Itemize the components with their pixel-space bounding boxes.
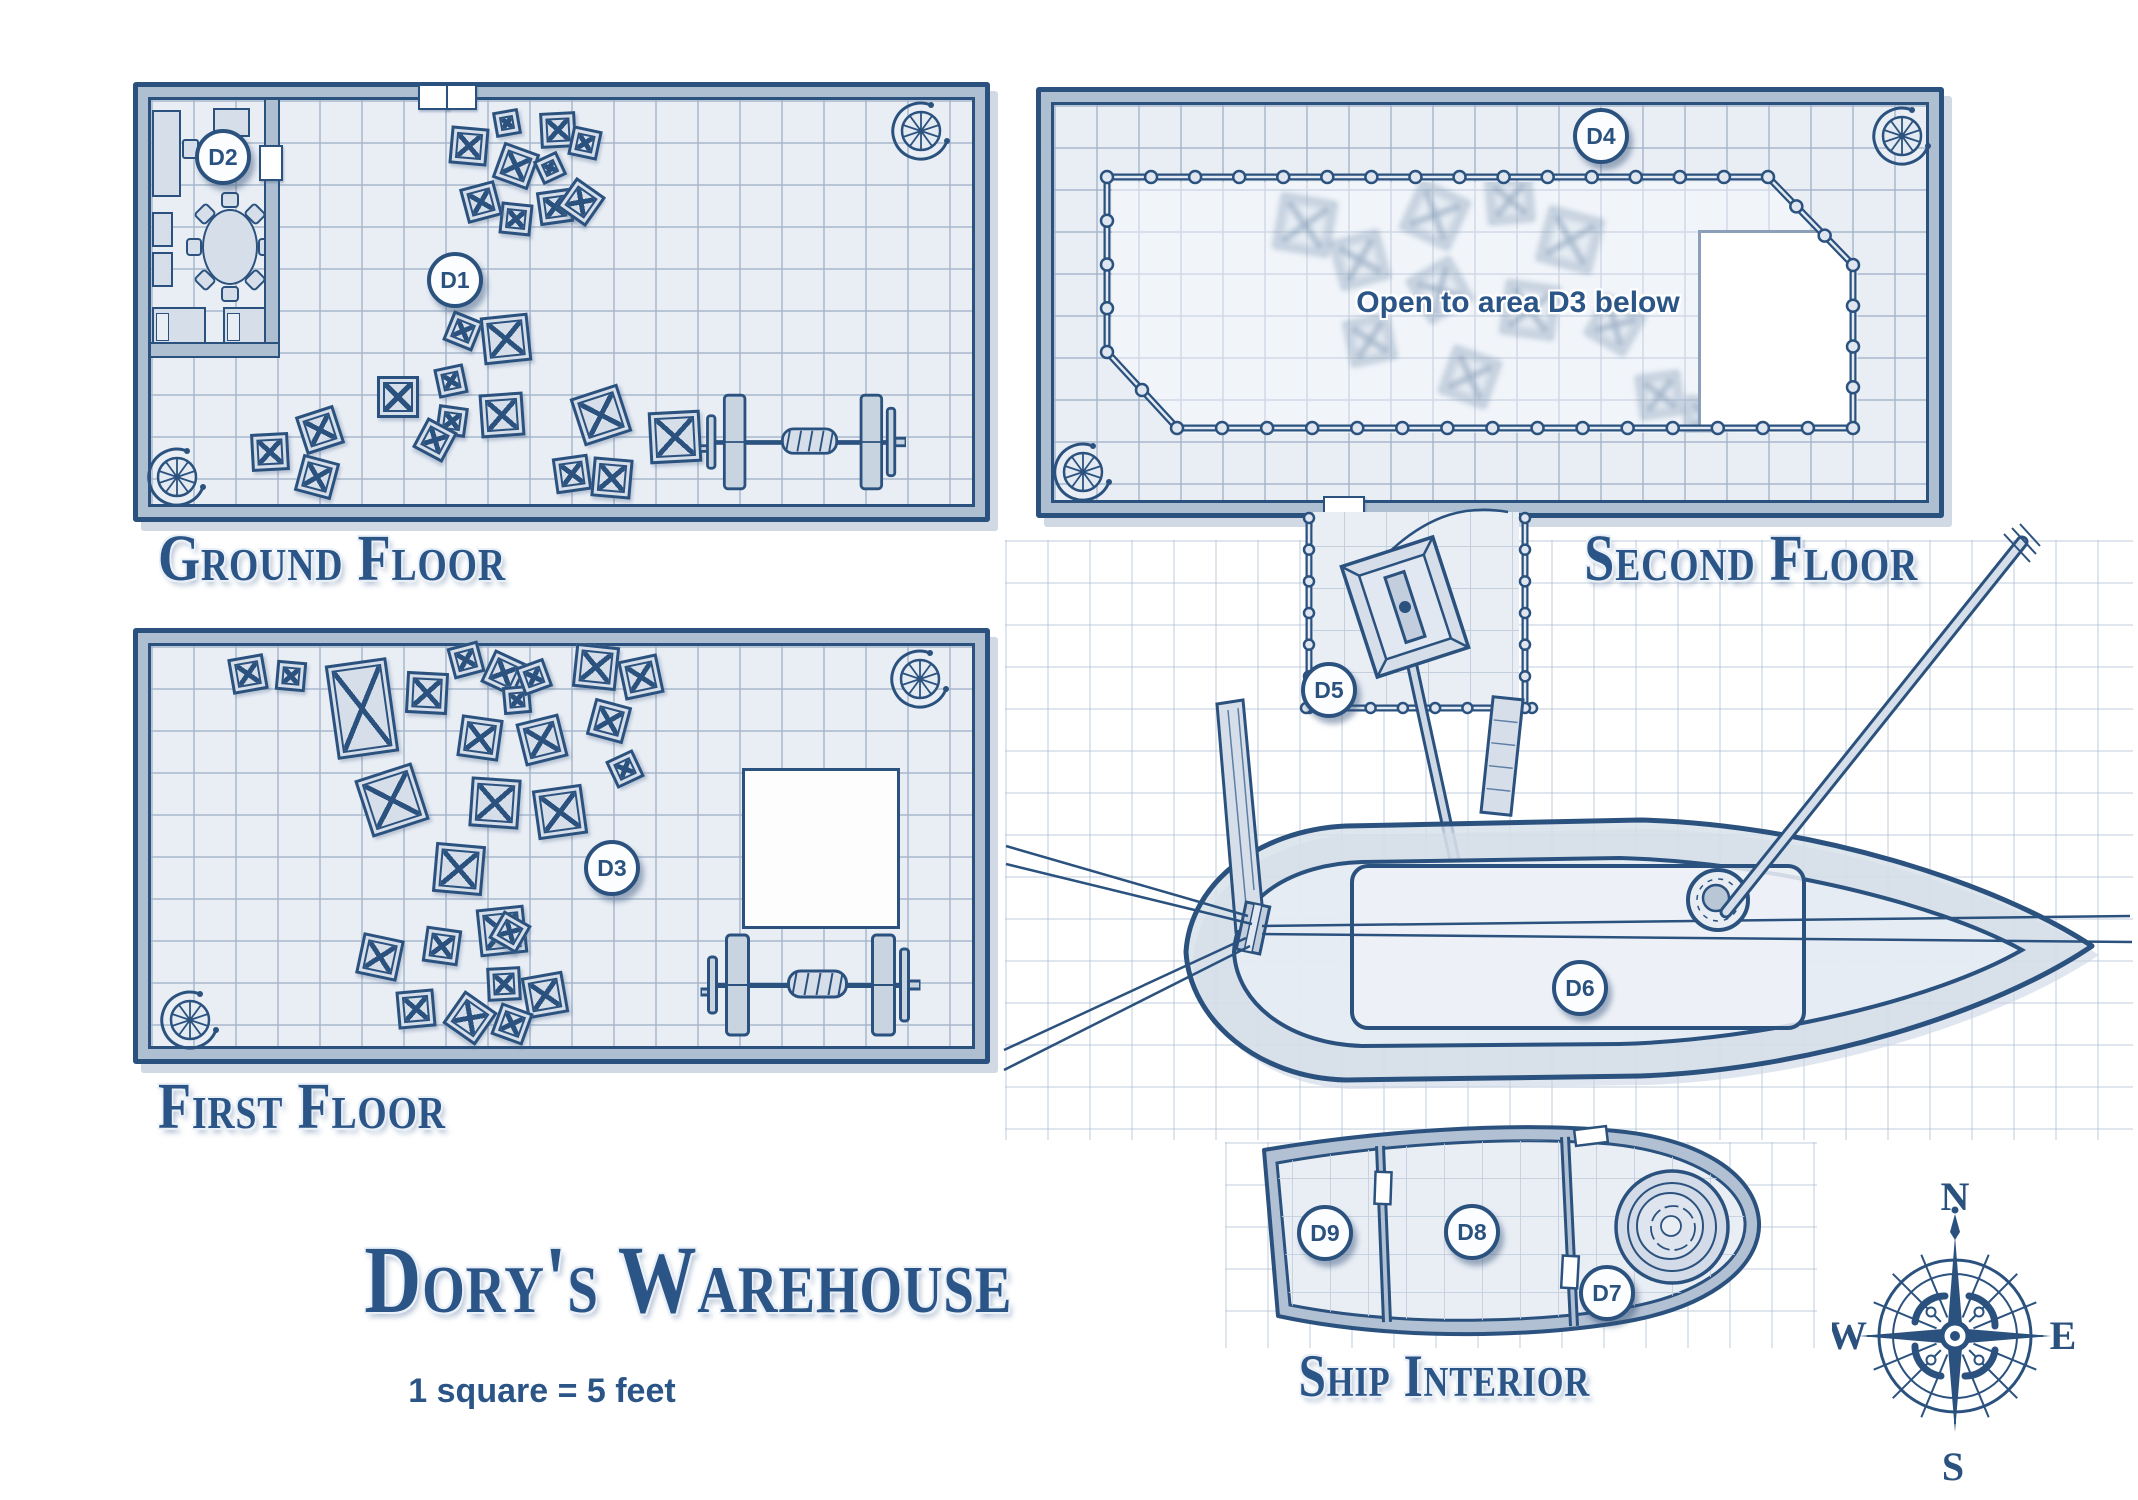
office-wall-vertical (264, 98, 280, 358)
ghost-hatch-square (1698, 230, 1854, 429)
second-floor-label: Second Floor (1584, 526, 1918, 592)
compass-spoke (1921, 1354, 1947, 1417)
compass-spoke (1874, 1302, 1937, 1328)
floor-opening-hatch (742, 768, 900, 929)
ghost-crate (1635, 370, 1685, 420)
shelf (152, 252, 173, 287)
compass-spoke (1963, 1255, 1989, 1318)
warehouse-entry-door-right (446, 84, 477, 110)
compass-spoke (1874, 1344, 1937, 1370)
area-marker-d3: D3 (584, 840, 640, 896)
first-floor-plan (133, 628, 990, 1064)
area-marker-d2: D2 (195, 129, 251, 185)
compass-spoke (1969, 1274, 2017, 1322)
ground-floor-label: Ground Floor (158, 526, 506, 592)
spiral-stairs-icon (889, 99, 953, 163)
spiral-stairs-icon (145, 445, 209, 509)
spiral-stairs-icon (888, 647, 952, 711)
spiral-stairs-icon (158, 988, 222, 1052)
compass-spoke (1893, 1350, 1941, 1398)
ghost-crate (1273, 193, 1338, 258)
loading-platform-door (1323, 496, 1365, 524)
office-wall-horizontal (149, 342, 280, 358)
table-chair (221, 286, 239, 302)
area-marker-d8: D8 (1444, 1204, 1500, 1260)
backdrop-grid (1005, 540, 2133, 1140)
area-marker-d1: D1 (427, 252, 483, 308)
ghost-crate (1343, 313, 1398, 368)
compass-spoke (1973, 1344, 2036, 1370)
first-floor-label: First Floor (158, 1074, 446, 1140)
spiral-stairs-icon (1051, 440, 1115, 504)
ship-interior-label: Ship Interior (1299, 1346, 1578, 1406)
warehouse-entry-door-left (418, 84, 449, 110)
compass-spoke (1893, 1274, 1941, 1322)
ghost-crate (1485, 175, 1535, 225)
ground-floor-plan (133, 82, 990, 522)
compass-south-label: S (1942, 1444, 1964, 1489)
area-marker-d5: D5 (1301, 662, 1357, 718)
compass-north-label: N (1941, 1174, 1970, 1219)
map-scale-note: 1 square = 5 feet (342, 1372, 742, 1411)
compass-spoke (1963, 1354, 1989, 1417)
table-chair (221, 192, 239, 208)
compass-spoke (1973, 1302, 2036, 1328)
office-door (259, 145, 283, 181)
table-chair (186, 238, 202, 256)
area-marker-d6: D6 (1552, 960, 1608, 1016)
open-to-below-note: Open to area D3 below (1328, 286, 1708, 320)
area-marker-d4: D4 (1573, 108, 1629, 164)
spiral-stairs-icon (1870, 104, 1934, 168)
compass-east-label: E (2050, 1313, 2077, 1358)
area-marker-d9: D9 (1297, 1205, 1353, 1261)
page-title: Dory's Warehouse (364, 1232, 905, 1328)
desk (152, 110, 181, 197)
compass-west-label: W (1832, 1313, 1867, 1358)
compass-rose: N E S W (1832, 1158, 2082, 1493)
warehouse-map-page: N E S W Ground Floor First Floor Second … (0, 0, 2138, 1500)
compass-spoke (1921, 1255, 1947, 1318)
shelf (152, 212, 173, 247)
bed (152, 307, 206, 347)
area-marker-d7: D7 (1579, 1265, 1635, 1321)
compass-spoke (1969, 1350, 2017, 1398)
